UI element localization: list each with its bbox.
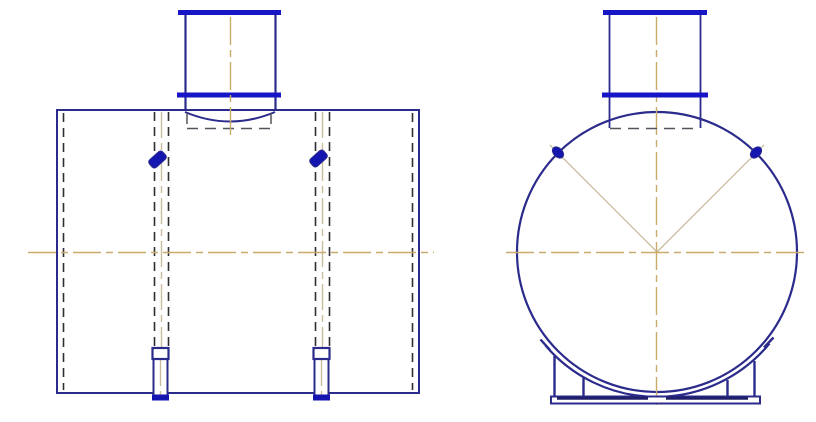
end-view — [506, 13, 809, 407]
tank-drawing — [0, 0, 816, 422]
side-view — [28, 13, 434, 401]
leg-right — [313, 348, 330, 401]
tank-shell-outline — [57, 110, 419, 393]
leg-right-cap — [314, 348, 330, 359]
drawing-canvas — [0, 0, 816, 422]
leg-right-foot — [313, 395, 330, 401]
leg-left-cap — [153, 348, 169, 359]
leg-left — [152, 348, 169, 401]
leg-left-foot — [152, 395, 169, 401]
